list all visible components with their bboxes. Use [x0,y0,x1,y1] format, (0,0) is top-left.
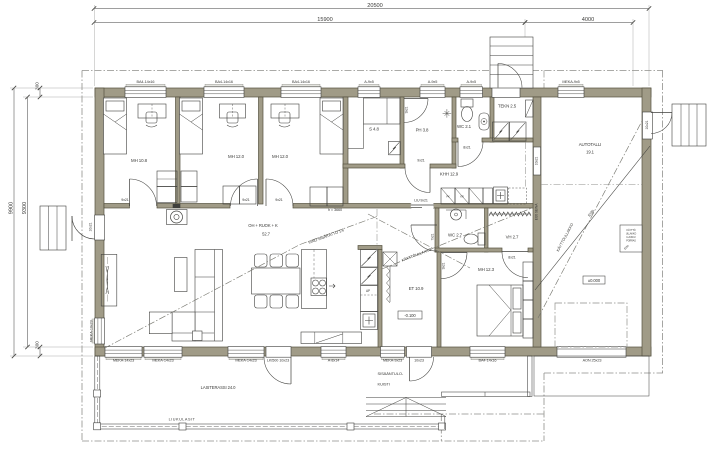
svg-text:TEKN 2.5: TEKN 2.5 [498,104,517,109]
svg-text:SISÄÄNTULO-: SISÄÄNTULO- [378,371,404,376]
svg-text:KR: KR [460,195,464,199]
svg-text:4000: 4000 [582,17,594,23]
svg-text:10x21: 10x21 [89,222,93,231]
svg-text:52.7: 52.7 [262,232,271,237]
svg-text:LASITERASSI 24.0: LASITERASSI 24.0 [201,385,236,390]
svg-text:BA4-14x16: BA4-14x16 [292,80,310,84]
svg-text:9x21: 9x21 [275,198,282,202]
svg-text:KHH 12.9: KHH 12.9 [440,172,459,177]
svg-text:VH 2.7: VH 2.7 [506,235,519,240]
svg-text:10x21: 10x21 [645,120,649,129]
svg-text:MEKA-9x23: MEKA-9x23 [383,359,402,363]
svg-text:-0.100: -0.100 [404,313,416,318]
svg-text:MEKA-14x23: MEKA-14x23 [235,359,256,363]
svg-text:MEKA-14x23: MEKA-14x23 [113,359,134,363]
svg-text:BA4-14x16: BA4-14x16 [215,80,233,84]
svg-text:10x23: 10x23 [414,359,424,363]
svg-text:20500: 20500 [367,3,383,9]
svg-text:9900: 9900 [8,202,14,214]
svg-text:300: 300 [34,82,39,90]
svg-text:300: 300 [34,341,39,349]
svg-text:AP: AP [366,289,370,293]
svg-text:MEKA-9x5: MEKA-9x5 [562,80,579,84]
svg-text:LIUKULASIT: LIUKULASIT [169,418,196,422]
svg-text:±0.000: ±0.000 [588,278,601,283]
svg-text:A-8x14: A-8x14 [328,359,339,363]
svg-text:LIU 9x21: LIU 9x21 [414,199,428,203]
svg-text:ET 10.9: ET 10.9 [409,286,424,291]
svg-text:OH + RUOK + K: OH + RUOK + K [248,223,278,228]
svg-text:MH 12.3: MH 12.3 [478,267,495,272]
svg-text:BA4-14x16: BA4-14x16 [479,359,497,363]
svg-text:19.1: 19.1 [586,150,595,155]
svg-text:MEKA-14x23: MEKA-14x23 [152,359,173,363]
svg-text:9x21: 9x21 [242,198,249,202]
svg-text:A-9x5: A-9x5 [428,80,437,84]
svg-text:15900: 15900 [317,17,333,23]
svg-text:S 4.8: S 4.8 [369,127,379,132]
svg-text:PORRAS: PORRAS [626,240,636,243]
svg-text:LKI500 10x23: LKI500 10x23 [267,359,289,363]
svg-text:MEKA-10x23: MEKA-10x23 [89,320,93,341]
svg-text:MH 10.8: MH 10.8 [131,158,148,163]
svg-text:9x21: 9x21 [405,106,409,113]
svg-text:MH 12.0: MH 12.0 [272,154,289,159]
svg-text:KUISTI: KUISTI [378,382,390,387]
svg-text:7x21: 7x21 [431,233,435,240]
svg-text:EI30 SEINÄ: EI30 SEINÄ [535,203,539,220]
svg-text:BA4-14x16: BA4-14x16 [137,80,155,84]
svg-text:PH 3.8: PH 3.8 [416,128,429,133]
svg-text:8x21: 8x21 [463,146,470,150]
svg-text:9x21: 9x21 [417,159,424,163]
svg-text:9x21: 9x21 [442,262,446,269]
svg-text:8x21: 8x21 [508,256,515,260]
svg-text:A-9x5: A-9x5 [364,80,373,84]
svg-text:AON 25x23: AON 25x23 [583,359,602,363]
svg-text:A-9x5: A-9x5 [467,80,476,84]
svg-text:9300: 9300 [22,202,28,214]
svg-text:MH 12.0: MH 12.0 [228,154,245,159]
svg-text:9x21: 9x21 [121,198,128,202]
svg-text:h = 3660: h = 3660 [328,208,342,212]
svg-text:AUTOTALLI: AUTOTALLI [579,142,602,147]
svg-text:PK: PK [446,195,450,199]
svg-text:WC 2.1: WC 2.1 [457,124,472,129]
svg-text:10x21: 10x21 [535,156,539,165]
